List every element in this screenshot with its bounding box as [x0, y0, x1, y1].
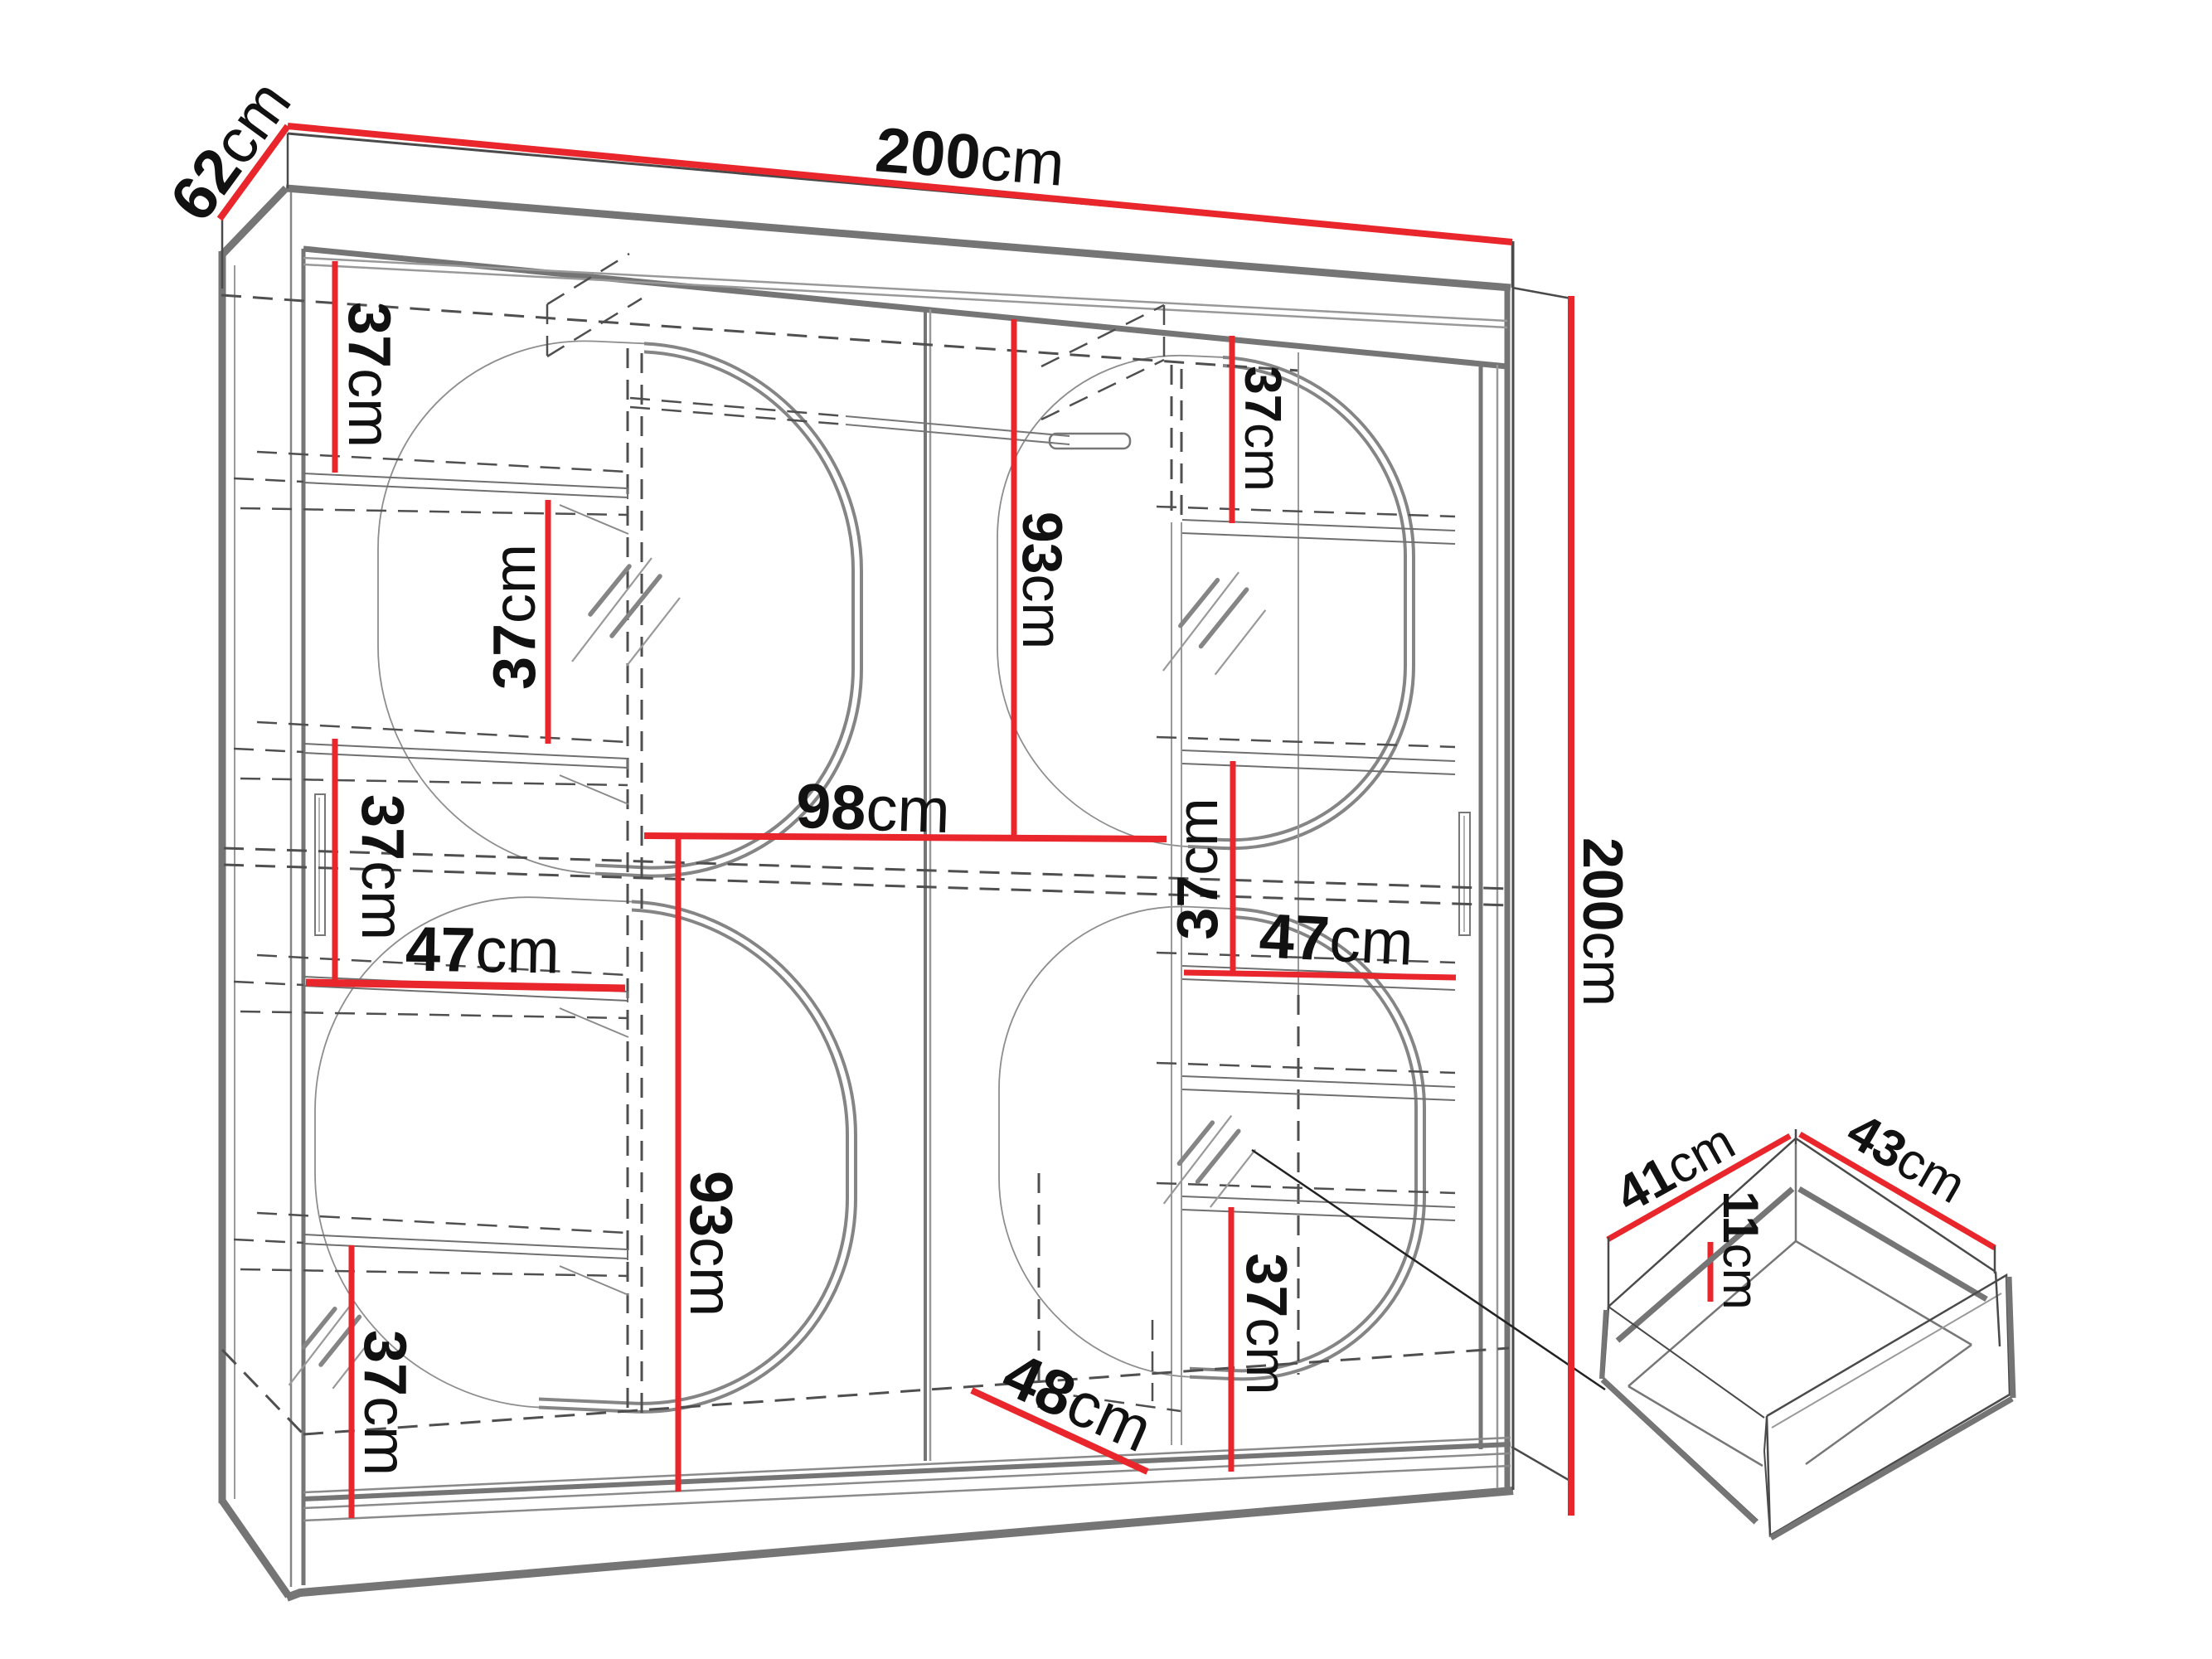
svg-text:93cm: 93cm: [1011, 512, 1074, 649]
svg-text:98cm: 98cm: [795, 771, 952, 846]
svg-text:200cm: 200cm: [873, 114, 1067, 200]
svg-text:37cm: 37cm: [482, 544, 548, 690]
svg-text:37cm: 37cm: [1235, 1253, 1299, 1395]
svg-text:47cm: 47cm: [1258, 900, 1415, 979]
svg-text:37cm: 37cm: [1234, 366, 1291, 492]
svg-text:37cm: 37cm: [336, 302, 402, 448]
svg-text:37cm: 37cm: [352, 1330, 418, 1476]
svg-text:37cm: 37cm: [1165, 798, 1230, 939]
svg-text:47cm: 47cm: [405, 914, 560, 987]
svg-text:93cm: 93cm: [677, 1171, 744, 1317]
svg-text:200cm: 200cm: [1571, 837, 1634, 1007]
svg-text:11cm: 11cm: [1713, 1191, 1768, 1309]
